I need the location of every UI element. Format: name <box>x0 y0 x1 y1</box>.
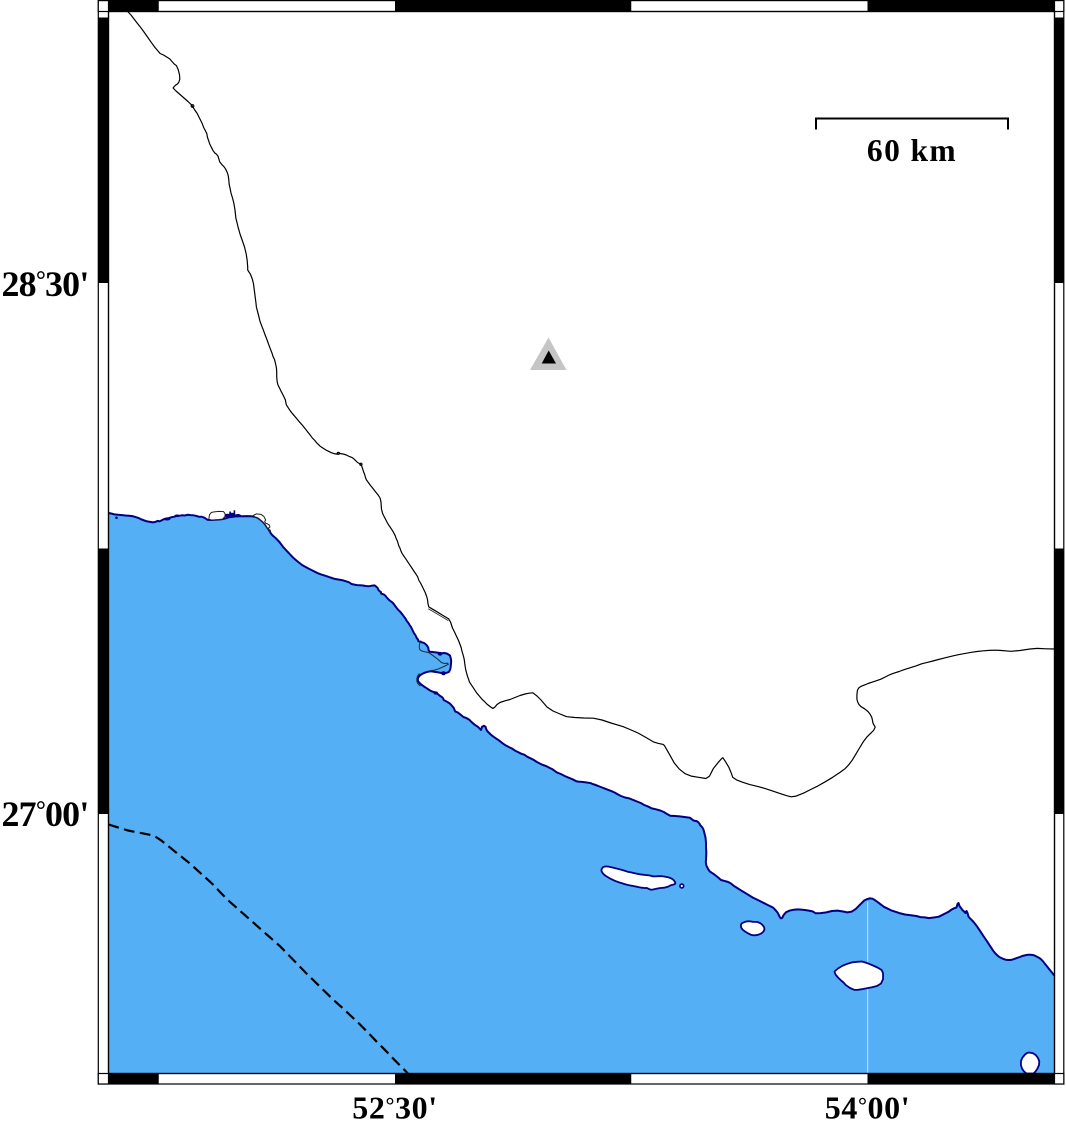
svg-text:54°00': 54°00' <box>825 1090 910 1122</box>
svg-text:60 km: 60 km <box>867 133 957 168</box>
svg-text:27°00': 27°00' <box>2 794 89 834</box>
svg-text:28°30': 28°30' <box>2 264 89 304</box>
svg-text:52°30': 52°30' <box>352 1090 437 1122</box>
